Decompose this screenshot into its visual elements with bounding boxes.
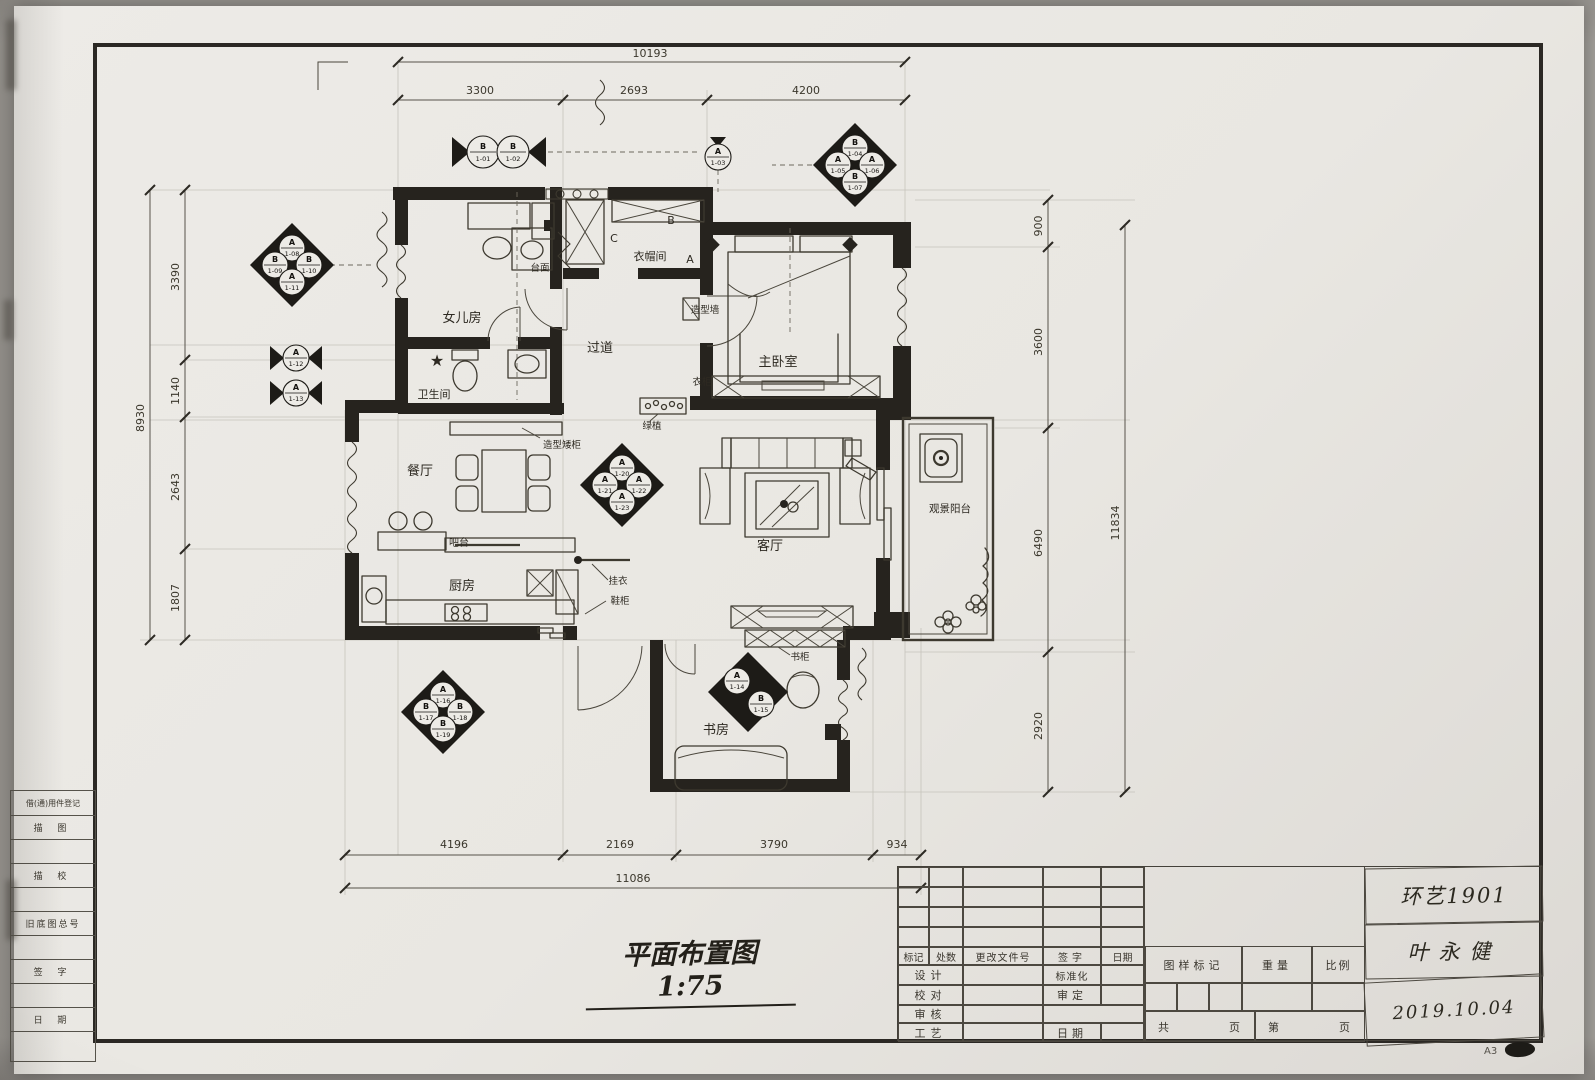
dimensions-bottom: 4196 2169 3790 934 11086 — [340, 838, 926, 893]
svg-text:A: A — [835, 155, 842, 164]
svg-text:11086: 11086 — [616, 872, 651, 885]
elevation-marker-quad-4: A1-16 B1-17 B1-18 B1-19 — [401, 670, 485, 754]
annotation-wardrobe: 衣柜 — [692, 376, 712, 388]
room-label-living: 客厅 — [757, 538, 783, 554]
svg-text:3300: 3300 — [466, 84, 494, 97]
svg-text:B: B — [510, 142, 516, 151]
elevation-marker-pair-2: A1-14 B1-15 — [708, 652, 788, 732]
pages-no-cell: 第 页 — [1255, 1011, 1365, 1042]
annotation-bookcase: 书柜 — [790, 651, 810, 663]
rev-header-mark: 标记 — [898, 947, 929, 965]
svg-text:B: B — [480, 142, 486, 151]
svg-text:A: A — [293, 383, 300, 392]
svg-text:A: A — [869, 155, 876, 164]
room-label-balcony: 观景阳台 — [929, 502, 971, 515]
room-label-closet: 衣帽间 — [634, 249, 667, 263]
rev-header-sign: 签字 — [1043, 947, 1101, 965]
photo-of-drawing: ★ — [0, 0, 1595, 1080]
elevation-marker-quad-2: A1-08 B1-09 B1-10 A1-11 — [250, 223, 334, 307]
svg-text:1-06: 1-06 — [865, 167, 880, 175]
rev-header-count: 处数 — [929, 947, 963, 965]
strip-row — [11, 888, 95, 912]
annotation-shoe-cabinet: 鞋柜 — [610, 595, 630, 607]
svg-text:A: A — [602, 475, 609, 484]
svg-text:3600: 3600 — [1032, 328, 1045, 356]
svg-text:1-22: 1-22 — [632, 487, 647, 495]
svg-text:B: B — [306, 255, 312, 264]
svg-text:3790: 3790 — [760, 838, 788, 851]
title-block: 标记 处数 更改文件号 签字 日期 设计 标准化 校对 审定 审核 工艺 日期 … — [897, 866, 1541, 1041]
elevation-marker-pair-1: B 1-01 B 1-02 — [452, 136, 546, 168]
annotation-feature-wall: 造型墙 — [691, 304, 720, 316]
svg-text:A: A — [440, 685, 447, 694]
svg-text:2693: 2693 — [620, 84, 648, 97]
svg-text:2169: 2169 — [606, 838, 634, 851]
svg-text:1-01: 1-01 — [476, 155, 491, 163]
daughter-room-furniture — [468, 192, 554, 400]
role-standard: 标准化 — [1043, 965, 1101, 985]
svg-text:1-23: 1-23 — [615, 504, 630, 512]
svg-text:1-19: 1-19 — [436, 731, 451, 739]
bathroom-furniture: ★ — [430, 350, 546, 391]
role-craft: 工艺 — [898, 1023, 963, 1042]
pages-total-prefix: 共 — [1158, 1019, 1171, 1035]
elevation-marker-quad-1: B1-04 A1-05 A1-06 B1-07 — [813, 123, 897, 207]
elevation-marker-quad-3: A1-20 A1-21 A1-22 A1-23 — [580, 443, 664, 527]
role-design: 设计 — [898, 965, 963, 985]
room-label-bar: 吧台 — [449, 536, 469, 549]
room-label-daughter: 女儿房 — [442, 310, 481, 326]
svg-text:A: A — [619, 492, 626, 501]
annotation-planter: 绿植 — [642, 420, 662, 432]
course-name: 环艺1901 — [1365, 865, 1544, 924]
balcony-furniture — [920, 434, 989, 633]
strip-row: 描 图 — [11, 816, 95, 840]
pages-no-prefix: 第 — [1268, 1019, 1281, 1035]
svg-text:1-21: 1-21 — [598, 487, 613, 495]
svg-text:900: 900 — [1032, 216, 1045, 237]
annotation-console: 造型矮柜 — [543, 439, 582, 451]
svg-text:A: A — [636, 475, 643, 484]
svg-text:A: A — [293, 348, 300, 357]
svg-text:1-08: 1-08 — [285, 250, 300, 258]
svg-text:1-17: 1-17 — [419, 714, 434, 722]
svg-text:B: B — [440, 719, 446, 728]
svg-text:1-15: 1-15 — [754, 706, 769, 714]
svg-text:8930: 8930 — [134, 404, 147, 432]
svg-text:A: A — [715, 147, 722, 156]
weight-label: 重量 — [1242, 946, 1312, 983]
svg-text:1807: 1807 — [169, 584, 182, 612]
role-blank — [1043, 1005, 1144, 1023]
elevation-marker-single-2: A 1-12 — [270, 345, 322, 371]
svg-text:4200: 4200 — [792, 84, 820, 97]
drawing-title: 平面布置图 1:75 — [584, 930, 796, 1011]
star-symbol: ★ — [430, 351, 444, 370]
room-label-corridor: 过道 — [587, 341, 613, 356]
pages-no-suffix: 页 — [1339, 1019, 1352, 1035]
room-label-dining: 餐厅 — [407, 463, 433, 479]
letter-c: C — [610, 232, 618, 245]
svg-text:A: A — [734, 671, 741, 680]
registration-strip: 借(通)用件登记 描 图 描 校 旧底图总号 签 字 日 期 — [10, 790, 96, 1062]
strip-row — [11, 936, 95, 960]
svg-text:6490: 6490 — [1032, 529, 1045, 557]
strip-row: 日 期 — [11, 1008, 95, 1032]
svg-text:B: B — [457, 702, 463, 711]
annotation-coat-rack: 挂衣 — [608, 575, 628, 587]
sheet-size-label: A3 — [1484, 1046, 1497, 1057]
strip-row: 签 字 — [11, 960, 95, 984]
planter-niche — [640, 398, 686, 414]
svg-text:1-02: 1-02 — [506, 155, 521, 163]
svg-text:2920: 2920 — [1032, 712, 1045, 740]
rev-header-date: 日期 — [1101, 947, 1144, 965]
mark-weight-scale: 图样标记 重量 比例 共 页 第 页 — [1144, 867, 1364, 1042]
role-check: 校对 — [898, 985, 963, 1005]
role-review: 审核 — [898, 1005, 963, 1023]
svg-text:3390: 3390 — [169, 263, 182, 291]
living-room-furniture — [700, 438, 876, 628]
drawing-info: 环艺1901 叶永健 2019.10.04 — [1364, 867, 1542, 1042]
elevation-marker-single-3: A 1-13 — [270, 380, 322, 406]
svg-text:1-18: 1-18 — [453, 714, 468, 722]
dimensions-right: 900 3600 6490 2920 11834 — [1032, 195, 1130, 797]
strip-row: 描 校 — [11, 864, 95, 888]
dining-furniture — [450, 422, 562, 512]
svg-text:1-14: 1-14 — [730, 683, 745, 691]
author-name: 叶永健 — [1365, 921, 1544, 979]
svg-text:10193: 10193 — [633, 47, 668, 60]
pages-total-suffix: 页 — [1229, 1019, 1242, 1035]
role-approve: 审定 — [1043, 985, 1101, 1005]
svg-text:1-20: 1-20 — [615, 470, 630, 478]
strip-row: 旧底图总号 — [11, 912, 95, 936]
svg-text:1140: 1140 — [169, 377, 182, 405]
svg-text:B: B — [852, 172, 858, 181]
svg-text:1-10: 1-10 — [302, 267, 317, 275]
svg-text:1-03: 1-03 — [711, 159, 726, 167]
svg-text:1-05: 1-05 — [831, 167, 846, 175]
svg-text:934: 934 — [887, 838, 908, 851]
svg-text:1-07: 1-07 — [848, 184, 863, 192]
svg-text:11834: 11834 — [1109, 506, 1122, 541]
svg-text:1-12: 1-12 — [289, 360, 304, 368]
svg-text:4196: 4196 — [440, 838, 468, 851]
plants — [935, 548, 989, 633]
svg-text:1-11: 1-11 — [285, 284, 300, 292]
svg-text:B: B — [423, 702, 429, 711]
elevation-marker-single-1: A 1-03 — [705, 137, 731, 170]
svg-text:A: A — [619, 458, 626, 467]
strip-row — [11, 1032, 95, 1061]
drawing-date: 2019.10.04 — [1363, 973, 1544, 1046]
role-date: 日期 — [1043, 1023, 1101, 1042]
svg-text:1-09: 1-09 — [268, 267, 283, 275]
svg-text:B: B — [272, 255, 278, 264]
revision-table: 标记 处数 更改文件号 签字 日期 设计 标准化 校对 审定 审核 工艺 日期 — [898, 867, 1144, 1042]
svg-text:A: A — [289, 272, 296, 281]
room-labels: 女儿房 衣帽间 主卧室 过道 卫生间 餐厅 吧台 厨房 客厅 观景阳台 书房 — [407, 249, 971, 738]
strip-row: 借(通)用件登记 — [11, 791, 95, 816]
letter-a: A — [686, 253, 694, 266]
svg-text:2643: 2643 — [169, 473, 182, 501]
strip-row — [11, 840, 95, 864]
dimensions-left: 3390 1140 2643 1807 8930 — [134, 185, 190, 645]
room-label-master: 主卧室 — [758, 354, 797, 370]
room-label-bath: 卫生间 — [418, 387, 451, 401]
corner-mark — [318, 62, 348, 90]
letter-b: B — [667, 214, 675, 227]
mark-label: 图样标记 — [1145, 946, 1242, 983]
svg-text:B: B — [852, 138, 858, 147]
doors — [488, 232, 891, 710]
svg-text:1-13: 1-13 — [289, 395, 304, 403]
rev-header-doc: 更改文件号 — [963, 947, 1043, 965]
dimensions-top: 10193 3300 2693 4200 — [393, 47, 910, 105]
pages-total-cell: 共 页 — [1145, 1011, 1255, 1042]
svg-text:1-04: 1-04 — [848, 150, 863, 158]
scale-label: 比例 — [1312, 946, 1365, 983]
bar-furniture — [378, 512, 446, 550]
strip-row — [11, 984, 95, 1008]
annotation-counter: 台面 — [530, 262, 549, 274]
svg-text:1-16: 1-16 — [436, 697, 451, 705]
room-label-study: 书房 — [703, 722, 729, 738]
room-label-kitchen: 厨房 — [449, 578, 475, 594]
svg-text:B: B — [758, 694, 764, 703]
svg-text:A: A — [289, 238, 296, 247]
